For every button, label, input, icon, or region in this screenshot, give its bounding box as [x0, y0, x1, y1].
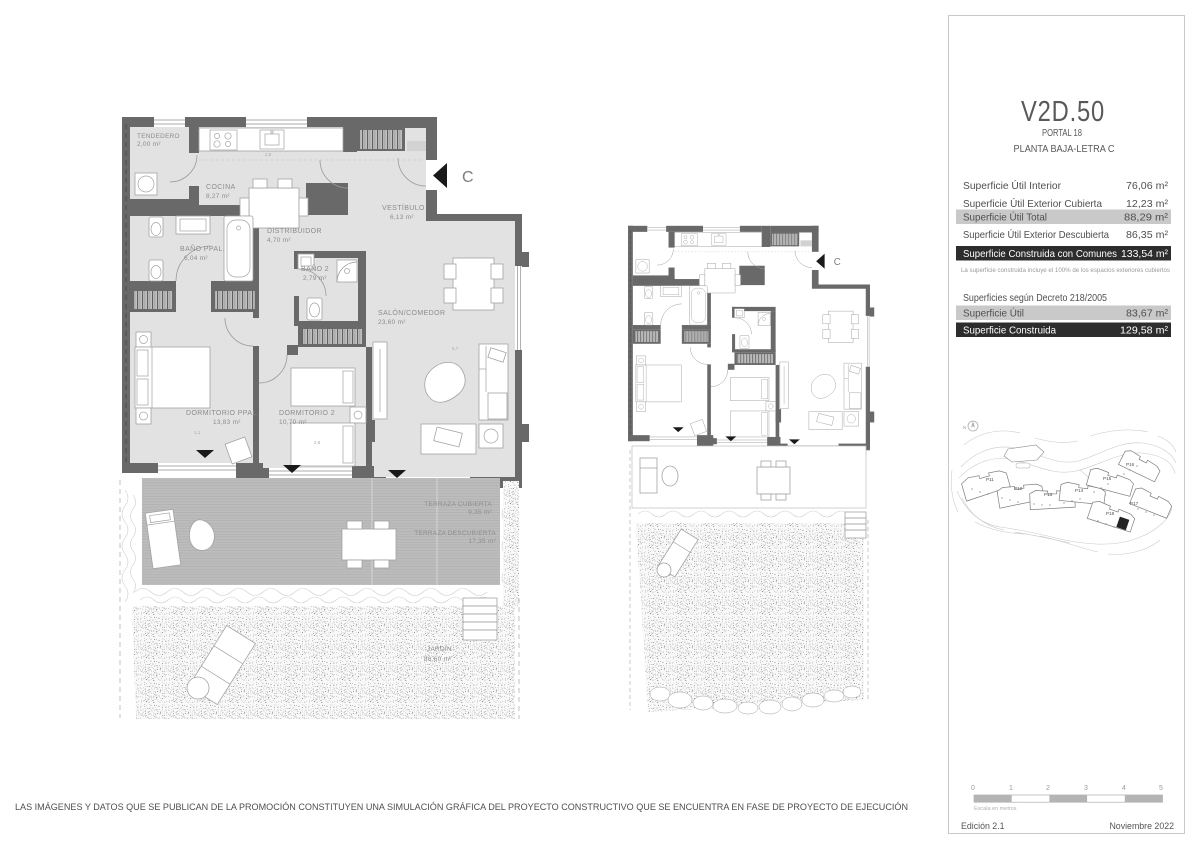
svg-text:La superficie construida inclu: La superficie construida incluye el 100%…	[961, 267, 1170, 274]
svg-text:TERRAZA CUBIERTA: TERRAZA CUBIERTA	[424, 501, 492, 508]
svg-text:P17: P17	[1130, 501, 1139, 506]
svg-text:2,8: 2,8	[314, 440, 321, 445]
svg-text:Superficie Útil Exterior Cubie: Superficie Útil Exterior Cubierta	[963, 197, 1102, 210]
svg-text:1,1: 1,1	[194, 430, 201, 435]
svg-text:DORMITORIO PPAL.: DORMITORIO PPAL.	[186, 410, 259, 417]
svg-text:13,83 m²: 13,83 m²	[213, 419, 241, 426]
svg-text:P16: P16	[1126, 462, 1135, 467]
svg-text:Edición 2.1: Edición 2.1	[961, 821, 1005, 831]
svg-text:4: 4	[1122, 785, 1126, 792]
svg-text:TERRAZA DESCUBIERTA: TERRAZA DESCUBIERTA	[414, 530, 496, 537]
svg-text:JARDÍN: JARDÍN	[427, 644, 452, 653]
svg-text:2,79 m²: 2,79 m²	[303, 275, 327, 282]
svg-text:Superficies según Decreto 218/: Superficies según Decreto 218/2005	[963, 292, 1107, 304]
svg-text:Superficie Útil Exterior Descu: Superficie Útil Exterior Descubierta	[963, 228, 1109, 241]
svg-text:Superficie Útil: Superficie Útil	[963, 307, 1024, 320]
svg-text:3: 3	[1084, 785, 1088, 792]
svg-text:1: 1	[1009, 785, 1013, 792]
svg-text:Superficie Construida con Comu: Superficie Construida con Comunes	[963, 248, 1117, 260]
svg-text:VESTÍBULO: VESTÍBULO	[382, 203, 425, 212]
svg-text:83,67 m²: 83,67 m²	[1126, 308, 1169, 320]
svg-text:6,04 m²: 6,04 m²	[184, 255, 208, 262]
svg-text:133,54 m²: 133,54 m²	[1121, 248, 1168, 260]
svg-text:6,13 m²: 6,13 m²	[390, 214, 414, 221]
svg-text:PORTAL 18: PORTAL 18	[1042, 128, 1082, 139]
svg-text:86,60 m²: 86,60 m²	[424, 656, 452, 663]
svg-text:BAÑO 2: BAÑO 2	[301, 264, 329, 273]
svg-text:0: 0	[971, 785, 975, 792]
svg-text:SALÓN/COMEDOR: SALÓN/COMEDOR	[378, 308, 445, 317]
svg-text:2: 2	[1046, 785, 1050, 792]
svg-text:N: N	[963, 425, 966, 430]
svg-text:Escala en metros: Escala en metros	[974, 806, 1017, 812]
svg-text:P18: P18	[1106, 511, 1115, 516]
svg-text:Noviembre 2022: Noviembre 2022	[1109, 821, 1174, 831]
svg-text:P12: P12	[1014, 486, 1023, 491]
svg-text:Superficie Útil Total: Superficie Útil Total	[963, 211, 1047, 224]
svg-text:10,70 m²: 10,70 m²	[279, 419, 307, 426]
svg-text:P13: P13	[1044, 492, 1053, 497]
svg-text:COCINA: COCINA	[206, 184, 236, 191]
svg-text:DORMITORIO 2: DORMITORIO 2	[279, 410, 335, 417]
svg-text:23,60 m²: 23,60 m²	[378, 319, 406, 326]
svg-text:5,7: 5,7	[452, 346, 459, 351]
svg-text:P14: P14	[1075, 488, 1084, 493]
svg-text:BAÑO PPAL.: BAÑO PPAL.	[180, 244, 225, 253]
svg-text:LAS IMÁGENES Y DATOS QUE SE PU: LAS IMÁGENES Y DATOS QUE SE PUBLICAN DE …	[15, 801, 908, 812]
svg-text:8,27 m²: 8,27 m²	[206, 193, 230, 200]
svg-text:P11: P11	[986, 477, 994, 482]
svg-text:V2D.50: V2D.50	[1021, 96, 1105, 128]
svg-text:4,70 m²: 4,70 m²	[267, 237, 291, 244]
svg-text:Superficie Construida: Superficie Construida	[963, 325, 1056, 337]
svg-text:17,35 m²: 17,35 m²	[468, 538, 496, 545]
svg-text:Superficie Útil Interior: Superficie Útil Interior	[963, 179, 1061, 192]
svg-text:88,29 m²: 88,29 m²	[1124, 212, 1169, 224]
svg-text:2,8: 2,8	[265, 152, 272, 157]
svg-text:86,35 m²: 86,35 m²	[1126, 229, 1169, 241]
svg-text:2,00 m²: 2,00 m²	[137, 141, 161, 148]
svg-text:76,06 m²: 76,06 m²	[1126, 180, 1169, 192]
svg-text:129,58 m²: 129,58 m²	[1120, 325, 1169, 337]
svg-text:5: 5	[1159, 785, 1163, 792]
svg-text:P15: P15	[1103, 476, 1112, 481]
svg-text:PLANTA BAJA-LETRA C: PLANTA BAJA-LETRA C	[1014, 144, 1115, 155]
svg-text:TENDEDERO: TENDEDERO	[137, 133, 180, 140]
svg-text:12,23 m²: 12,23 m²	[1126, 198, 1169, 210]
svg-text:DISTRIBUIDOR: DISTRIBUIDOR	[267, 228, 322, 235]
svg-text:9,35 m²: 9,35 m²	[468, 509, 492, 516]
